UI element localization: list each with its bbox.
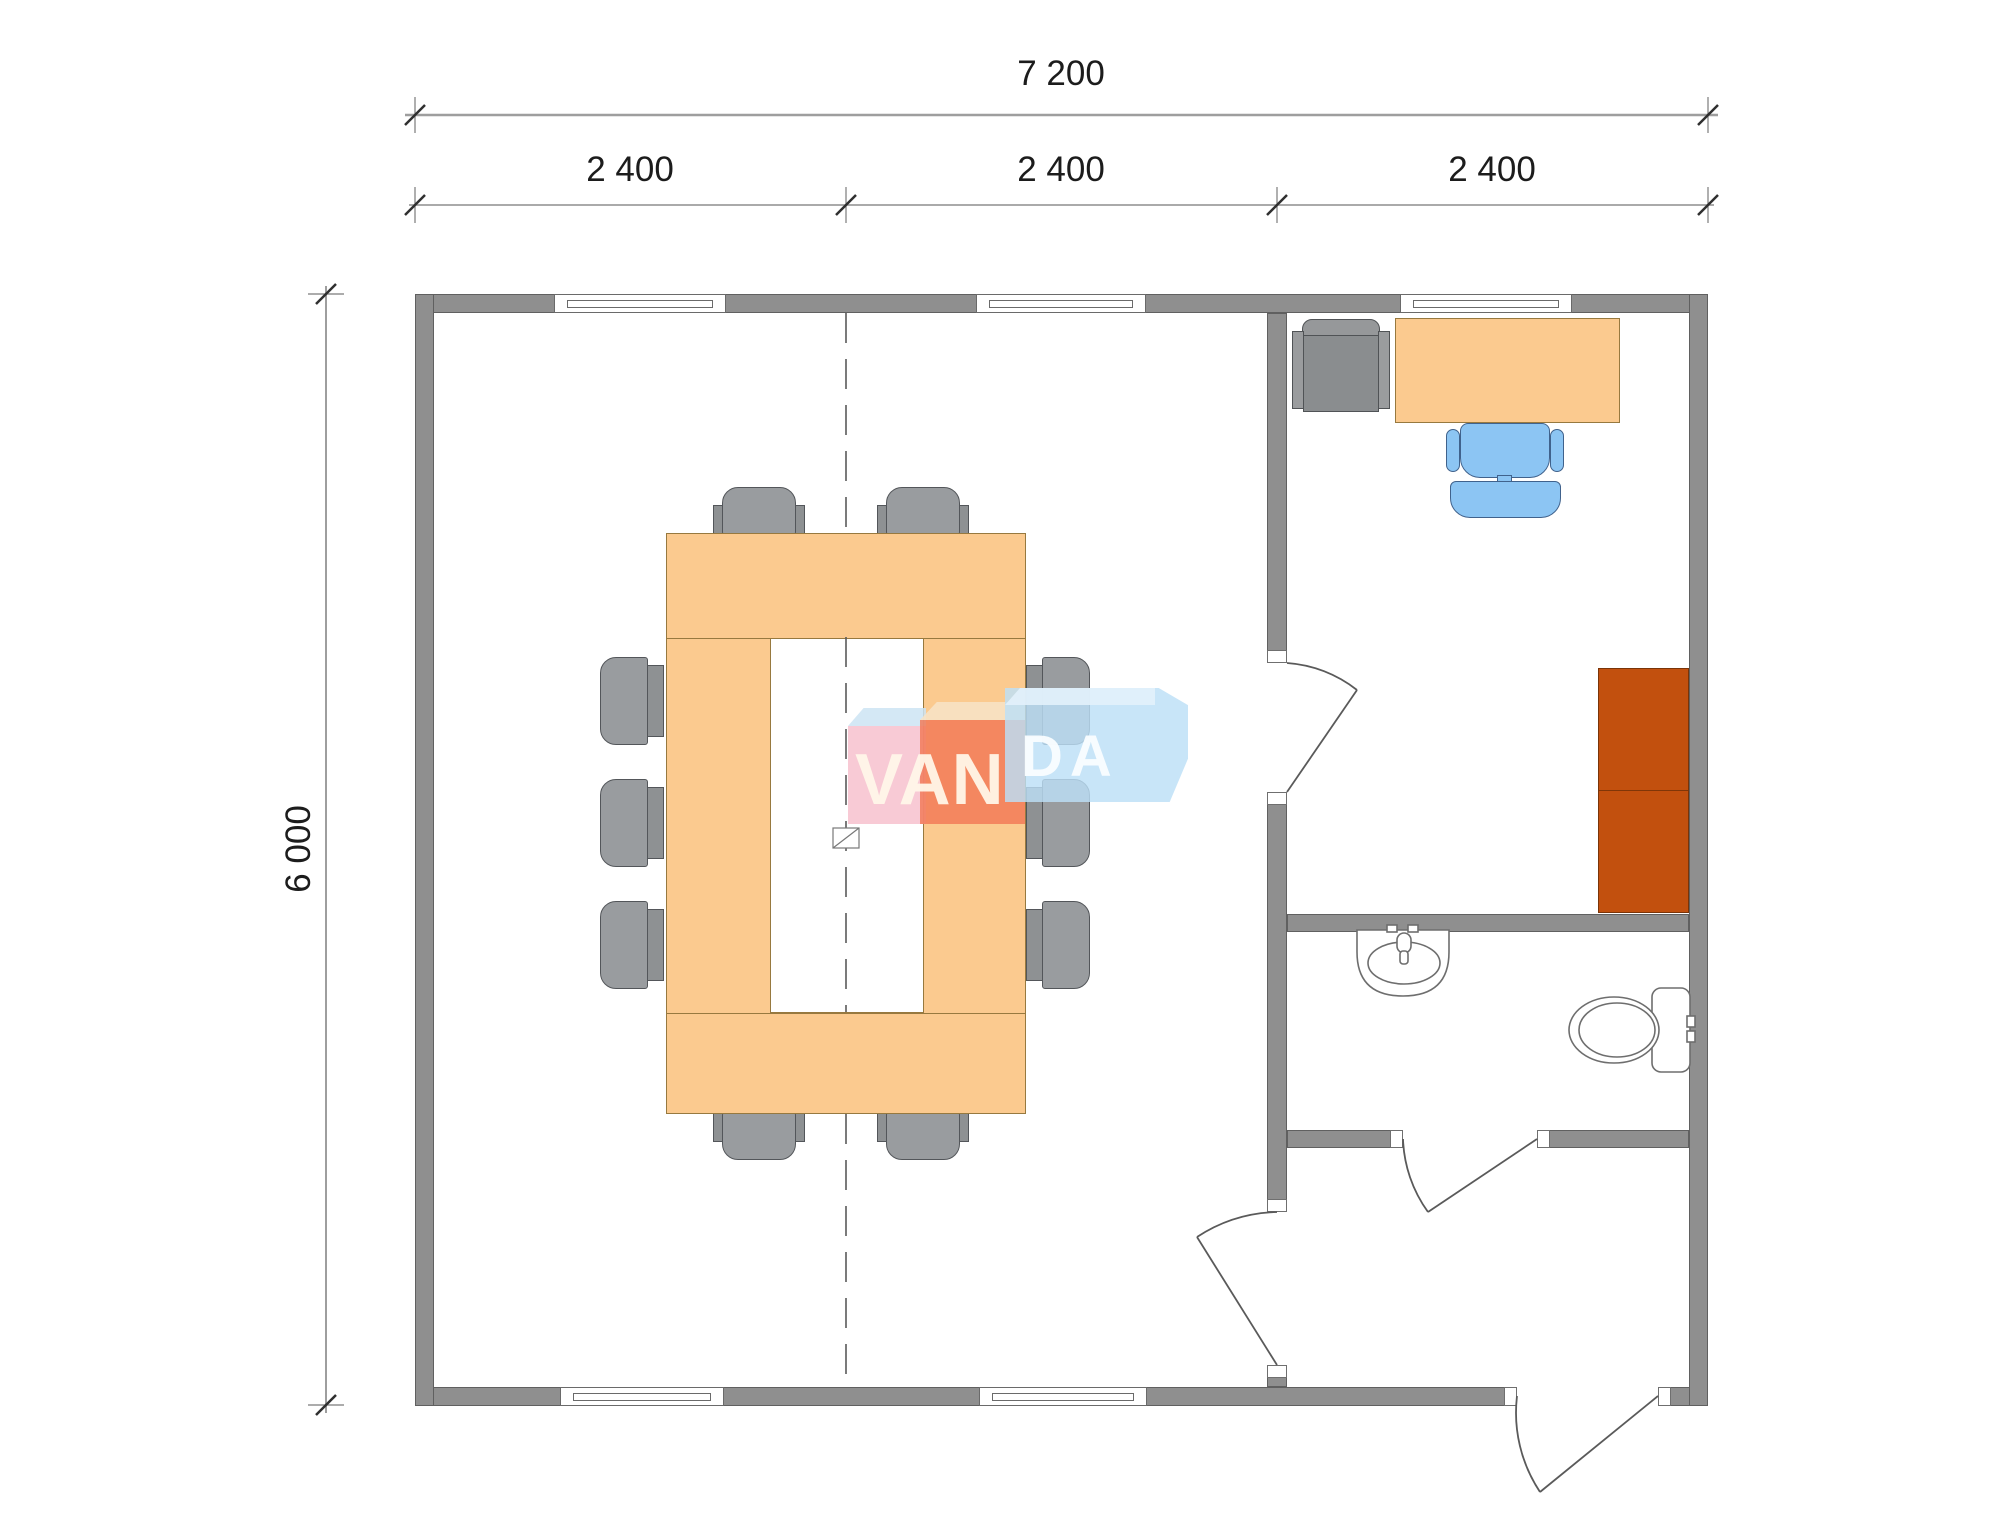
floor-plan-canvas: 7 200 2 400 2 400 2 400 6 000: [0, 0, 2000, 1516]
sink: [1357, 925, 1449, 996]
door-swing-meeting-room: [1197, 1212, 1277, 1365]
toilet-bowl: [1579, 1003, 1655, 1057]
toilet: [1569, 988, 1695, 1072]
door-swing-office: [1287, 663, 1357, 792]
door-swing-bathroom: [1403, 1139, 1537, 1212]
dim-line-total-height: [308, 284, 344, 1415]
sink-faucet: [1397, 933, 1411, 953]
dim-line-modules: [405, 187, 1718, 223]
module-joint-symbol: [833, 828, 859, 848]
linework-overlay: [0, 0, 2000, 1516]
door-swing-entrance: [1516, 1396, 1658, 1492]
dim-line-total-width: [405, 97, 1718, 133]
